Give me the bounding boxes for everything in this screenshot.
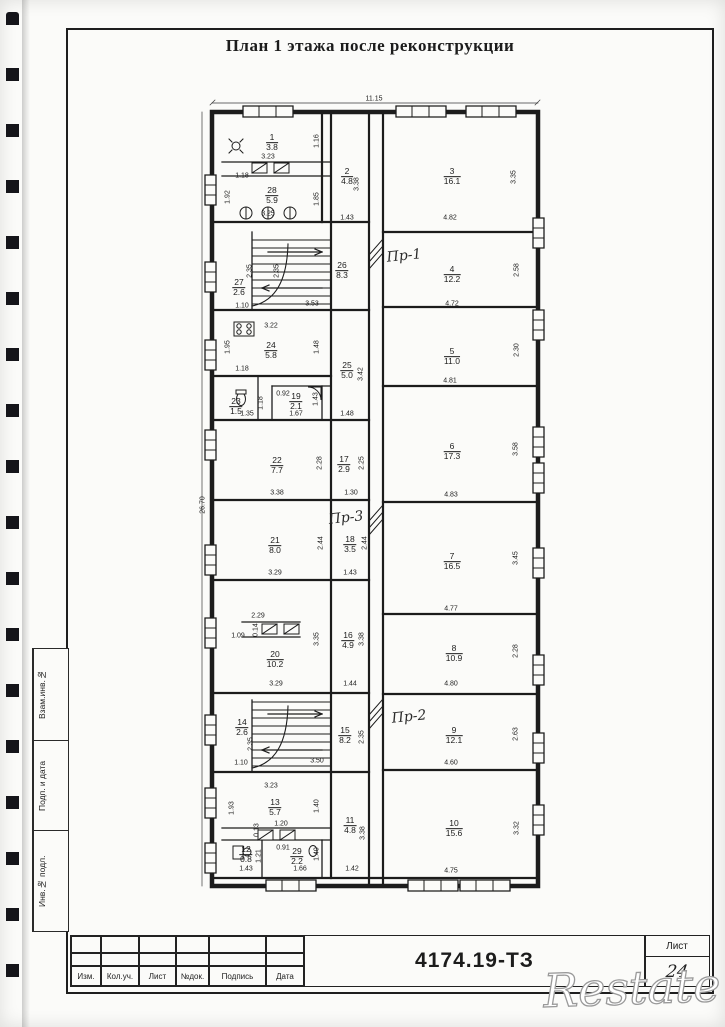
room-area: 3.5: [343, 546, 356, 555]
room-area: 10.9: [446, 655, 463, 664]
room-area: 5.8: [264, 352, 277, 361]
handwritten-annotation: Пр-1: [386, 246, 422, 266]
room-label: 11 4.8: [344, 816, 357, 836]
dimension-text: 1.18: [235, 366, 249, 373]
dimension-text: 2.35: [274, 264, 281, 278]
dimension-text: 26.70: [200, 496, 207, 514]
dimension-text: 0.13: [254, 823, 261, 837]
room-label: 15 8.2: [338, 726, 351, 746]
room-label: 3 16.1: [444, 167, 461, 187]
room-label: 7 16.5: [444, 552, 461, 572]
stamp-box-inv: Инв.№ подл.: [32, 830, 69, 932]
dimension-text: 1.18: [258, 396, 265, 410]
room-area: 0.8: [239, 856, 252, 865]
titleblock-col-izm: Изм.: [71, 966, 101, 986]
room-area: 4.8: [344, 827, 357, 836]
dimension-text: 3.38: [270, 490, 284, 497]
stamp-box-podp: Подп. и дата: [32, 740, 69, 832]
stamp-blank: [50, 831, 68, 931]
dimension-text: 2.28: [513, 644, 520, 658]
room-label: 29 2.2: [290, 847, 303, 867]
dimension-text: 4.82: [443, 215, 457, 222]
dimension-text: 0.92: [276, 391, 290, 398]
room-label: 19 2.1: [289, 392, 302, 412]
room-label: 26 8.3: [335, 261, 348, 281]
room-area: 8.2: [338, 737, 351, 746]
titleblock-empty-cell: [176, 953, 209, 966]
dimension-text: 3.35: [511, 170, 518, 184]
room-area: 4.8: [341, 178, 353, 187]
dimension-text: 1.20: [274, 821, 288, 828]
titleblock-empty-cell: [139, 953, 176, 966]
room-label: 12 0.8: [239, 845, 252, 865]
dimension-text: 2.25: [359, 456, 366, 470]
dimension-text: 1.42: [345, 866, 359, 873]
plan-text-layer: 1 3.8 2 4.8 3 16.1 28 5.9 27 2.6 26 8.3 …: [0, 0, 725, 1027]
titleblock-empty-cell: [176, 936, 209, 953]
dimension-text: 1.66: [293, 866, 307, 873]
room-label: 27 2.6: [232, 278, 245, 298]
dimension-text: 1.48: [340, 411, 354, 418]
room-area: 5.9: [265, 197, 278, 206]
dimension-text: 1.44: [343, 681, 357, 688]
dimension-text: 3.35: [314, 632, 321, 646]
room-area: 10.2: [267, 661, 284, 670]
dimension-text: 1.40: [314, 847, 321, 861]
room-label: 9 12.1: [446, 726, 463, 746]
dimension-text: 4.80: [444, 681, 458, 688]
room-area: 8.0: [268, 547, 281, 556]
stamp-box-vzam: Взам.инв.№: [32, 648, 69, 742]
room-label: 18 3.5: [343, 535, 356, 555]
dimension-text: 1.43: [239, 866, 253, 873]
room-label: 10 15.6: [446, 819, 463, 839]
room-label: 24 5.8: [264, 341, 277, 361]
dimension-text: 3.23: [264, 783, 278, 790]
dimension-text: 1.09: [231, 633, 245, 640]
dimension-text: 2.44: [362, 536, 369, 550]
room-label: 17 2.9: [337, 455, 350, 475]
dimension-text: 1.40: [314, 799, 321, 813]
room-area: 2.9: [337, 466, 350, 475]
dimension-text: 3.58: [513, 442, 520, 456]
room-area: 12.2: [444, 276, 461, 285]
dimension-text: 1.43: [313, 392, 320, 406]
dimension-text: 4.60: [444, 760, 458, 767]
room-area: 15.6: [446, 830, 463, 839]
dimension-text: 2.44: [318, 536, 325, 550]
dimension-text: 2.35: [359, 730, 366, 744]
room-label: 16 4.9: [341, 631, 354, 651]
room-label: 25 5.0: [340, 361, 353, 381]
room-label: 5 11.0: [444, 347, 460, 367]
dimension-text: 1.16: [314, 134, 321, 148]
dimension-text: 3.23: [261, 154, 275, 161]
dimension-text: 3.38: [359, 632, 366, 646]
dimension-text: 1.48: [314, 340, 321, 354]
room-label: 13 5.7: [268, 798, 281, 818]
room-label: 28 5.9: [265, 186, 278, 206]
dimension-text: 1.43: [343, 570, 357, 577]
dimension-text: 0.14: [253, 623, 260, 637]
room-area: 7.7: [270, 467, 283, 476]
dimension-text: 1.67: [289, 411, 303, 418]
dimension-text: 3.38: [354, 177, 361, 191]
titleblock-grid: Изм. Кол.уч. Лист №док. Подпись Дата: [70, 935, 305, 987]
dimension-text: 1.21: [256, 849, 263, 863]
dimension-text: 1.10: [234, 760, 248, 767]
restate-watermark: Restate: [540, 955, 725, 1027]
sheet-label: Лист: [645, 936, 709, 957]
dimension-text: 4.77: [444, 606, 458, 613]
room-area: 3.8: [266, 144, 278, 153]
titleblock-col-ndok: №док.: [176, 966, 209, 986]
watermark-text: Restate: [541, 958, 721, 1018]
room-area: 8.3: [335, 272, 348, 281]
dimension-text: 2.28: [317, 456, 324, 470]
room-label: 21 8.0: [268, 536, 281, 556]
dimension-text: 3.50: [310, 758, 324, 765]
dimension-text: 4.81: [443, 378, 457, 385]
dimension-text: 1.92: [225, 190, 232, 204]
handwritten-annotation: Пр-3: [328, 508, 364, 528]
room-label: 20 10.2: [267, 650, 284, 670]
dimension-text: 3.42: [358, 367, 365, 381]
handwritten-annotation: Пр-2: [391, 707, 427, 727]
dimension-text: 3.25: [261, 211, 275, 218]
room-area: 11.0: [444, 358, 460, 367]
room-area: 16.5: [444, 563, 461, 572]
dimension-text: 4.83: [444, 492, 458, 499]
titleblock-empty-cell: [209, 936, 266, 953]
dimension-text: 1.10: [235, 303, 249, 310]
scanned-sheet: План 1 этажа после реконструкции: [0, 0, 725, 1027]
dimension-text: 3.38: [360, 826, 367, 840]
dimension-text: 1.35: [240, 411, 254, 418]
dimension-text: 0.91: [276, 845, 290, 852]
titleblock-empty-cell: [71, 936, 101, 953]
stamp-label: Подп. и дата: [33, 741, 50, 831]
dimension-text: 3.29: [269, 681, 283, 688]
room-label: 4 12.2: [444, 265, 461, 285]
dimension-text: 3.32: [514, 821, 521, 835]
dimension-text: 1.95: [225, 340, 232, 354]
room-area: 5.0: [340, 372, 353, 381]
room-area: 17.3: [444, 453, 461, 462]
titleblock-col-data: Дата: [266, 966, 304, 986]
dimension-text: 1.93: [229, 801, 236, 815]
room-label: 14 2.6: [235, 718, 248, 738]
dimension-text: 2.30: [514, 343, 521, 357]
dimension-text: 4.72: [445, 301, 459, 308]
stamp-label: Инв.№ подл.: [33, 831, 50, 931]
dimension-text: 3.45: [513, 551, 520, 565]
dimension-text: 2.29: [251, 613, 265, 620]
titleblock-col-list: Лист: [139, 966, 176, 986]
room-label: 1 3.8: [266, 133, 278, 153]
room-label: 22 7.7: [270, 456, 283, 476]
titleblock-empty-cell: [266, 953, 304, 966]
dimension-text: 2.35: [247, 264, 254, 278]
dimension-text: 11.15: [366, 96, 383, 103]
dimension-text: 3.29: [268, 570, 282, 577]
dimension-text: 1.43: [340, 215, 354, 222]
room-label: 2 4.8: [341, 167, 353, 187]
titleblock-empty-cell: [266, 936, 304, 953]
stamp-blank: [50, 649, 68, 741]
titleblock-empty-cell: [71, 953, 101, 966]
titleblock-empty-cell: [101, 936, 139, 953]
dimension-text: 3.22: [264, 323, 278, 330]
stamp-label: Взам.инв.№: [33, 649, 50, 741]
room-label: 6 17.3: [444, 442, 461, 462]
titleblock-col-podpis: Подпись: [209, 966, 266, 986]
room-label: 8 10.9: [446, 644, 463, 664]
titleblock-empty-cell: [101, 953, 139, 966]
dimension-text: 2.58: [514, 263, 521, 277]
dimension-text: 1.18: [235, 173, 249, 180]
titleblock-empty-cell: [139, 936, 176, 953]
stamp-blank: [50, 741, 68, 831]
room-area: 12.1: [446, 737, 463, 746]
dimension-text: 1.85: [314, 192, 321, 206]
titleblock-empty-cell: [209, 953, 266, 966]
titleblock-col-koluch: Кол.уч.: [101, 966, 139, 986]
room-area: 16.1: [444, 178, 461, 187]
room-area: 2.6: [232, 289, 245, 298]
dimension-text: 2.35: [248, 737, 255, 751]
dimension-text: 1.30: [344, 490, 358, 497]
room-area: 5.7: [268, 809, 281, 818]
dimension-text: 3.53: [305, 301, 319, 308]
dimension-text: 2.63: [513, 727, 520, 741]
room-area: 4.9: [341, 642, 354, 651]
dimension-text: 4.75: [444, 868, 458, 875]
